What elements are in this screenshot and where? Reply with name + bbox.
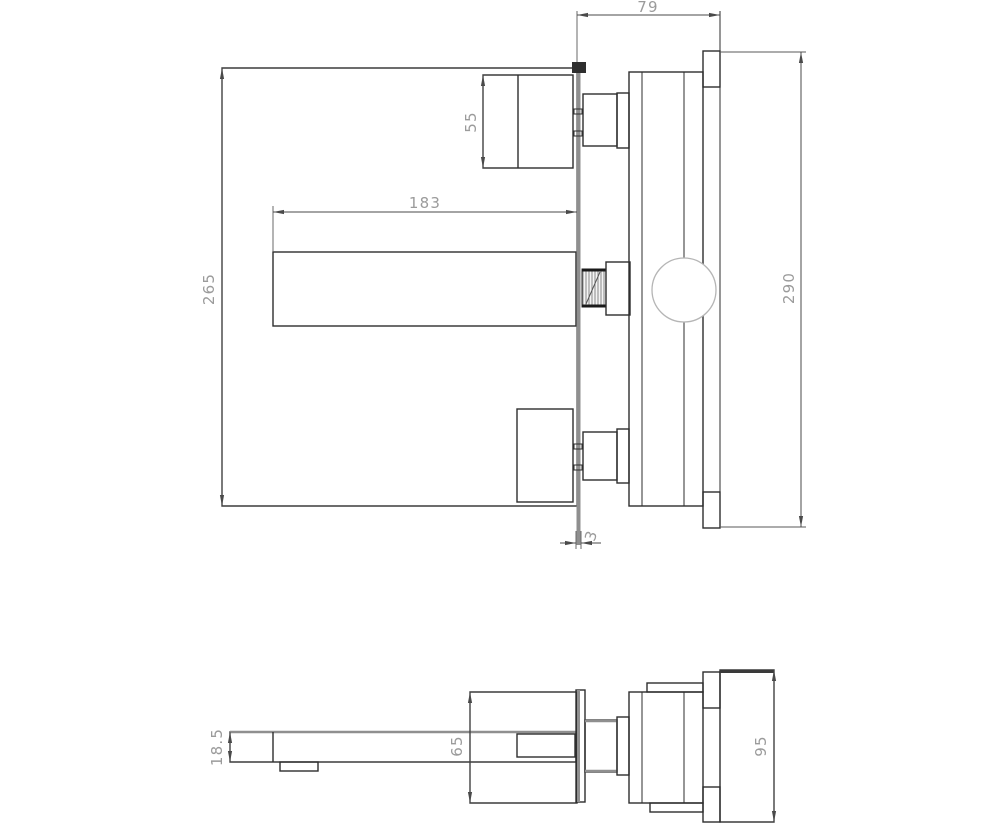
top-valve-stub	[583, 94, 617, 146]
dim-plate-width-95: 95	[752, 670, 774, 822]
bottom-handle	[517, 409, 573, 502]
body-bottom-tab	[650, 803, 703, 812]
escutcheon-square	[470, 692, 577, 803]
body-top-tab	[647, 683, 703, 692]
dim-thickness-3: 3	[560, 528, 601, 549]
top-handle	[483, 75, 573, 168]
dim-label-79: 79	[637, 0, 659, 16]
mounting-block-top	[703, 51, 720, 87]
side-view: 79 55 183 265 290	[200, 0, 806, 549]
dim-body-width-65: 65	[448, 692, 470, 803]
top-valve-collar	[617, 93, 629, 148]
dim-handle-55: 55	[462, 75, 483, 168]
dim-plate-290: 290	[720, 52, 806, 527]
dim-label-265: 265	[200, 273, 218, 305]
dim-label-183: 183	[409, 194, 441, 212]
mounting-block-plan-top	[703, 672, 720, 708]
dim-depth-79: 79	[577, 0, 720, 62]
mounting-block-plan-bottom	[703, 787, 720, 822]
dim-label-3: 3	[581, 528, 601, 544]
mounting-block-bottom	[703, 492, 720, 528]
spout-connection	[517, 734, 575, 757]
dim-spout-width-18-5: 18.5	[208, 728, 230, 766]
dim-label-18-5: 18.5	[208, 728, 226, 766]
connector-plan	[585, 720, 617, 772]
front-installation-box	[222, 68, 577, 506]
dim-spout-183: 183	[273, 194, 577, 252]
spout-side	[273, 252, 576, 326]
technical-drawing: 79 55 183 265 290	[0, 0, 1000, 830]
dim-label-290: 290	[780, 272, 798, 304]
wall-plate-cap	[572, 62, 586, 73]
mid-collar	[606, 262, 630, 315]
bottom-valve-stub	[583, 432, 617, 480]
concealed-body-plan	[629, 692, 703, 803]
cartridge-circle	[652, 258, 716, 322]
collar-plan	[617, 717, 629, 775]
dim-label-65: 65	[448, 735, 466, 757]
threaded-nipple	[582, 269, 606, 307]
aerator-tab	[280, 762, 318, 771]
dim-label-55: 55	[462, 111, 480, 133]
drawing-canvas: 79 55 183 265 290	[0, 0, 1000, 830]
bottom-valve-collar	[617, 429, 629, 483]
dim-height-265: 265	[200, 68, 222, 506]
plan-view: 18.5 65 95	[208, 670, 774, 822]
dim-label-95: 95	[752, 735, 770, 757]
